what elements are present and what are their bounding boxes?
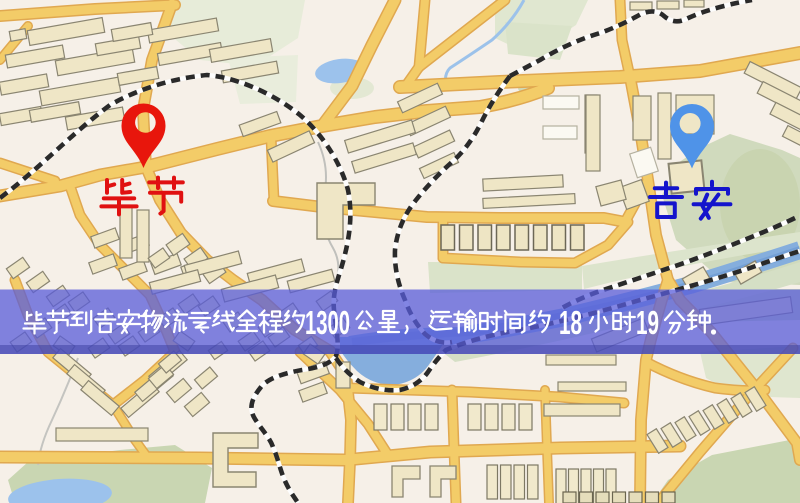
- svg-text:18: 18: [559, 304, 582, 341]
- svg-text:19: 19: [636, 304, 659, 341]
- svg-text:1300: 1300: [305, 304, 350, 341]
